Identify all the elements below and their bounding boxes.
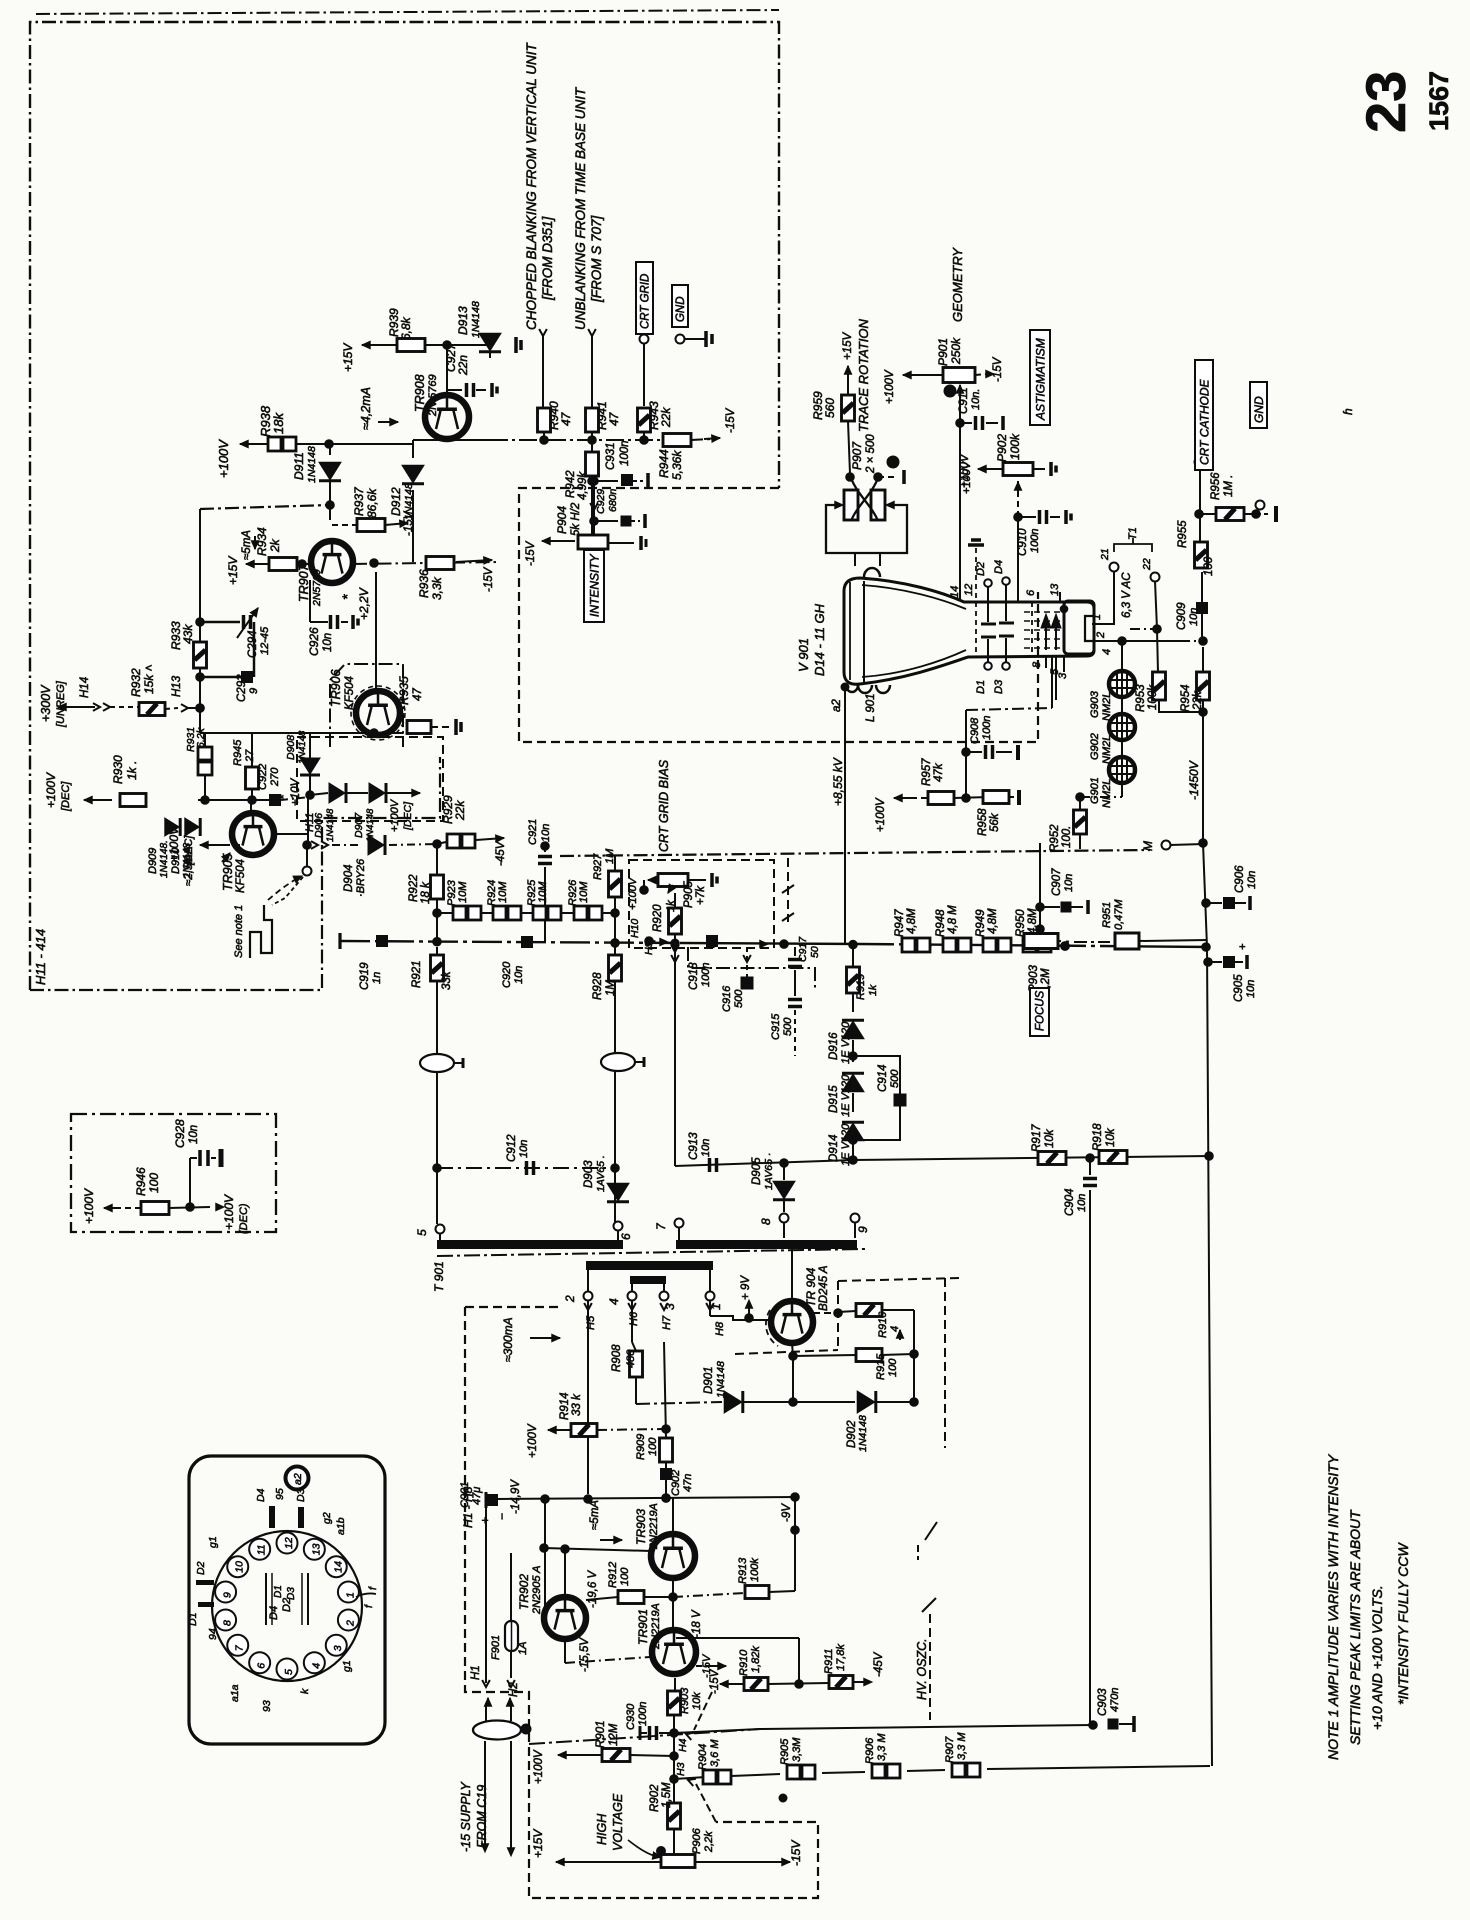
svg-text:R956: R956 [1210,472,1222,500]
svg-text:a2: a2 [831,699,843,712]
svg-text:M: M [1141,841,1155,851]
svg-text:TR903: TR903 [634,1509,648,1545]
svg-text:1k: 1k [867,984,879,996]
svg-text:R944: R944 [657,449,671,478]
svg-text:H5: H5 [585,1315,597,1330]
svg-text:R905: R905 [779,1738,791,1765]
svg-text:R922: R922 [408,874,420,902]
svg-text:-1450V: -1450V [1187,760,1201,800]
svg-text:[DEC]: [DEC] [60,781,72,812]
svg-text:1M .: 1M . [1223,475,1235,497]
svg-text:R927: R927 [592,853,604,880]
svg-text:13: 13 [310,1543,322,1555]
svg-text:10n: 10n [513,966,525,984]
svg-text:18 k: 18 k [420,881,432,904]
svg-text:4,8 M: 4,8 M [947,905,959,934]
svg-text:2N 5769: 2N 5769 [427,374,439,417]
svg-text:1,82k: 1,82k [750,1646,762,1673]
svg-text:VOLTAGE: VOLTAGE [611,1793,625,1851]
svg-text:+15V: +15V [341,343,355,372]
svg-text:22: 22 [1141,558,1153,571]
svg-text:R935: R935 [397,676,411,705]
svg-text:C918: C918 [688,962,700,990]
svg-text:R918: R918 [1092,1123,1104,1151]
svg-text:R921: R921 [411,961,423,989]
svg-text:2: 2 [563,1295,577,1303]
svg-text:H11 - 414: H11 - 414 [33,929,48,985]
svg-text:+100V: +100V [389,798,401,832]
svg-text:+100V: +100V [216,439,231,478]
svg-text:D2: D2 [195,1561,207,1575]
svg-text:G902: G902 [1089,733,1101,760]
svg-text:R949: R949 [975,909,987,937]
svg-text:500: 500 [889,1069,901,1088]
svg-text:12: 12 [963,584,975,596]
svg-text:D908: D908 [285,735,297,760]
svg-text:86,6k: 86,6k [365,488,379,518]
svg-text:47μ: 47μ [471,1487,483,1505]
svg-text:P905: P905 [683,881,695,908]
svg-text:R904: R904 [697,1744,709,1770]
svg-text:5: 5 [283,1669,295,1675]
svg-text:C901: C901 [459,1482,471,1508]
svg-text:93: 93 [261,1700,273,1712]
svg-text:H10: H10 [629,919,641,938]
svg-text:C917: C917 [797,936,809,962]
svg-text:+100V: +100V [884,369,896,404]
svg-text:680n: 680n [607,488,619,512]
svg-text:+7k: +7k [695,885,707,905]
svg-text:D915: D915 [828,1085,840,1113]
svg-text:CRT CATHODE: CRT CATHODE [1197,378,1211,465]
svg-text:+100V: +100V [222,1194,236,1230]
svg-text:R952: R952 [1049,824,1061,852]
svg-text:D909: D909 [147,848,159,874]
svg-text:≈300mA: ≈300mA [501,1317,515,1362]
svg-text:4: 4 [607,1298,621,1305]
svg-text:R958: R958 [977,808,989,836]
svg-text:3,6 M: 3,6 M [709,1739,721,1767]
svg-text:10n.: 10n. [970,389,982,410]
svg-text:1N4148: 1N4148 [297,730,308,764]
svg-text:R911: R911 [823,1649,835,1674]
svg-text:10n: 10n [700,1139,712,1157]
svg-text:1k .: 1k . [125,761,139,780]
svg-text:10n: 10n [1076,1194,1088,1212]
svg-text:56k: 56k [989,812,1001,832]
svg-text:-18 V: -18 V [691,1609,703,1638]
svg-text:100n: 100n [981,716,993,740]
svg-text:100k: 100k [1147,684,1159,710]
svg-text:P906: P906 [691,1827,703,1854]
svg-text:47k: 47k [933,762,945,782]
svg-text:-15,5V: -15,5V [579,1637,591,1672]
svg-text:TRACE ROTATION: TRACE ROTATION [856,318,871,432]
svg-text:6: 6 [256,1663,268,1669]
svg-text:R903: R903 [679,1687,691,1714]
svg-text:4: 4 [310,1663,322,1669]
svg-text:-14,9V: -14,9V [510,1479,522,1514]
svg-text:R913: R913 [737,1557,749,1584]
svg-text:D907: D907 [353,812,365,838]
svg-text:4,8M: 4,8M [906,908,918,934]
svg-text:-45V: -45V [495,840,507,866]
svg-text:2N2219A: 2N2219A [648,1503,660,1550]
svg-text:-15V: -15V [725,407,737,433]
svg-text:NM2L: NM2L [1101,779,1113,808]
svg-text:TR908: TR908 [413,374,427,412]
svg-text:-15V: -15V [525,540,537,566]
svg-text:C919: C919 [359,962,371,990]
svg-text:47: 47 [412,688,424,701]
svg-text:8: 8 [1031,661,1043,668]
svg-text:1N4148: 1N4148 [182,843,193,878]
svg-text:47: 47 [607,411,621,426]
svg-text:270: 270 [269,767,281,787]
svg-text:C914: C914 [877,1065,889,1093]
svg-text:P902: P902 [995,434,1009,462]
svg-text:R942: R942 [565,470,577,498]
svg-text:D4: D4 [993,560,1005,574]
svg-text:10n: 10n [188,1125,200,1144]
svg-text:+100V: +100V [875,797,887,832]
svg-text:+100V: +100V [527,1423,539,1458]
svg-text:+: + [1237,943,1249,950]
svg-text:250k: 250k [949,337,963,365]
svg-text:2N2905 A: 2N2905 A [531,1565,543,1615]
svg-text:TR902: TR902 [517,1574,531,1610]
svg-text:+15V: +15V [226,556,240,585]
svg-text:21: 21 [1099,548,1111,561]
svg-text:18k: 18k [271,412,286,434]
svg-text:10n: 10n [540,824,552,842]
svg-text:3,3M: 3,3M [791,1737,803,1762]
svg-text:8: 8 [222,1620,234,1626]
svg-text:8: 8 [759,1218,773,1225]
svg-text:480: 480 [625,1349,637,1368]
svg-text:3,3k: 3,3k [430,576,444,600]
svg-text:10M: 10M [457,881,469,903]
svg-text:C920: C920 [501,961,513,988]
svg-text:100k: 100k [749,1558,761,1582]
svg-text:D905: D905 [751,1157,763,1185]
svg-text:R953: R953 [1135,684,1147,712]
svg-text:10n: 10n [1063,874,1075,892]
svg-text:D911: D911 [292,452,306,480]
svg-text:43k: 43k [181,624,195,644]
svg-text:R932: R932 [129,668,143,697]
svg-text:2: 2 [1095,632,1107,639]
svg-text:1N4148: 1N4148 [857,1415,869,1452]
svg-text:4,8M: 4,8M [987,908,999,934]
svg-text:+100V: +100V [961,460,973,494]
svg-text:D2: D2 [975,562,987,576]
svg-text:H11: H11 [304,813,316,832]
svg-text:12-45: 12-45 [259,626,271,655]
svg-text:k: k [299,1688,311,1694]
svg-text:-15V: -15V [483,566,495,592]
svg-text:HV. OSZC.: HV. OSZC. [915,1638,929,1700]
svg-text:5,36k: 5,36k [670,450,684,480]
svg-text:C294: C294 [247,631,259,659]
svg-text:R908: R908 [611,1344,623,1372]
svg-text:R937: R937 [352,486,366,516]
svg-text:500: 500 [782,1017,794,1036]
svg-text:10M: 10M [497,881,509,903]
svg-text:D3: D3 [993,679,1005,694]
svg-text:22k: 22k [453,800,467,821]
svg-text:D910: D910 [170,847,182,874]
svg-text:22k: 22k [659,407,673,428]
svg-text:95: 95 [274,1488,286,1500]
svg-text:3: 3 [1057,672,1069,679]
svg-text:1N4148: 1N4148 [403,483,415,520]
svg-text:D916: D916 [828,1032,840,1060]
svg-text:C909: C909 [1176,602,1188,630]
svg-text:C908: C908 [969,717,981,744]
svg-text:1N4148: 1N4148 [325,808,336,842]
svg-text:a1b: a1b [335,1517,347,1535]
svg-text:TR906: TR906 [329,669,343,707]
svg-text:≈5mA: ≈5mA [241,530,253,560]
svg-text:0,47M: 0,47M [1113,899,1125,930]
svg-text:D14 - 11 GH: D14 - 11 GH [812,603,827,676]
svg-text:500: 500 [733,989,745,1008]
svg-text:[DEC]: [DEC] [402,801,414,831]
svg-text:C916: C916 [721,985,733,1012]
svg-text:T 901: T 901 [432,1261,446,1292]
svg-text:P901: P901 [936,338,950,366]
svg-text:+ 9V: + 9V [740,1275,752,1300]
svg-text:D901: D901 [703,1367,715,1395]
svg-text:D1: D1 [187,1613,199,1626]
svg-text:17,8k: 17,8k [835,1644,847,1671]
svg-text:R916: R916 [877,1311,889,1338]
svg-text:*INTENSITY FULLY CCW: *INTENSITY FULLY CCW [1395,1542,1411,1705]
svg-text:P904: P904 [555,506,569,534]
svg-text:C906: C906 [1234,865,1246,893]
svg-text:560: 560 [823,398,837,418]
svg-text:G903: G903 [1089,690,1101,718]
svg-text:GND: GND [1252,396,1266,423]
svg-text:C912: C912 [506,1134,518,1162]
svg-text:ɦ: ɦ [1341,408,1355,415]
svg-text:+100V: +100V [82,1188,96,1224]
svg-text:L 901: L 901 [865,693,877,722]
svg-text:+10 AND +100 VOLTS.: +10 AND +100 VOLTS. [1369,1585,1385,1730]
svg-text:R936: R936 [417,569,431,598]
svg-text:-15V: -15V [992,356,1004,382]
svg-text:2N2219A: 2N2219A [650,1603,662,1650]
svg-text:R914: R914 [559,1393,571,1421]
svg-text:94: 94 [207,1628,219,1640]
svg-text:C902: C902 [670,1470,682,1496]
svg-text:12: 12 [283,1537,295,1549]
svg-text:15k ˄: 15k ˄ [142,664,156,694]
svg-text:100n: 100n [619,440,631,466]
svg-text:R901: R901 [595,1721,607,1749]
svg-text:H1: H1 [470,1665,482,1680]
svg-text:D4: D4 [255,1488,267,1502]
svg-text:+15V: +15V [531,1829,545,1858]
svg-text:CRT GRID: CRT GRID [640,274,652,329]
svg-text:V 901: V 901 [796,638,811,672]
svg-text:10n: 10n [1188,608,1200,626]
svg-text:FOCUS: FOCUS [1035,990,1047,1031]
svg-text:FROM C19: FROM C19 [475,1785,489,1848]
svg-text:C931: C931 [605,443,617,471]
svg-text:1567: 1567 [1424,71,1454,131]
svg-text:1,5M: 1,5M [661,1782,673,1808]
svg-text:KF504: KF504 [344,676,356,710]
svg-text:50: 50 [809,946,821,958]
svg-text:*: * [339,594,355,600]
svg-text:G901: G901 [1089,777,1101,804]
svg-text:9: 9 [856,1226,870,1233]
svg-text:D912: D912 [389,487,403,516]
svg-text:1: 1 [1091,614,1103,620]
svg-text:GEOMETRY: GEOMETRY [950,247,965,322]
svg-text:C928: C928 [173,1119,187,1148]
svg-text:470n: 470n [1109,1688,1121,1712]
svg-text:g1: g1 [207,1536,219,1548]
svg-text:CHOPPED BLANKING FROM VERTICAL: CHOPPED BLANKING FROM VERTICAL UNIT [524,41,539,330]
svg-text:C907: C907 [1051,868,1063,896]
svg-text:[FROM S 707]: [FROM S 707] [589,214,604,303]
svg-text:R910: R910 [738,1649,750,1676]
svg-text:100: 100 [1203,556,1215,576]
svg-text:R912: R912 [607,1562,619,1588]
svg-text:4: 4 [1101,649,1113,655]
svg-text:100: 100 [647,1437,659,1456]
svg-text:C930: C930 [625,1703,637,1730]
svg-text:C911: C911 [958,387,970,414]
svg-text:1A: 1A [517,1642,529,1655]
svg-text:R930: R930 [111,755,125,784]
svg-text:-9V: -9V [781,1503,793,1522]
svg-text:10n: 10n [1246,871,1258,889]
svg-text:100: 100 [619,1567,631,1586]
svg-text:+8,55 kV: +8,55 kV [831,757,845,806]
svg-text:33k: 33k [441,970,453,990]
svg-text:4,99k: 4,99k [577,471,589,500]
svg-text:22n: 22n [456,355,470,376]
svg-text:BD245 A: BD245 A [818,1265,830,1311]
svg-text:C903: C903 [1097,1688,1109,1716]
svg-text:GND: GND [675,296,687,322]
svg-text:D3: D3 [286,1587,297,1600]
svg-text:C926: C926 [307,627,321,656]
svg-text:H3: H3 [675,1762,687,1776]
svg-text:10: 10 [234,1561,246,1573]
svg-text:6,8k: 6,8k [399,316,413,340]
svg-text:(DEC): (DEC) [238,1203,250,1234]
svg-text:H7: H7 [661,1315,673,1330]
svg-text:HIGH: HIGH [595,1813,609,1845]
svg-text:1AV65 .: 1AV65 . [595,1155,607,1192]
svg-text:D1: D1 [975,680,987,694]
svg-text:10k: 10k [1044,1128,1056,1148]
svg-text:KF504: KF504 [235,859,247,893]
svg-text:-15V: -15V [789,1840,803,1866]
svg-text:1n: 1n [371,972,383,984]
svg-text:47: 47 [559,411,573,426]
svg-text:+100V: +100V [44,772,58,808]
svg-text:D1: D1 [273,1585,284,1598]
svg-text:ASTIGMATISM: ASTIGMATISM [1033,338,1047,421]
svg-text:−: − [495,1513,509,1520]
svg-text:10M: 10M [578,881,590,903]
svg-text:1N4148: 1N4148 [715,1361,727,1398]
svg-text:See note 1: See note 1 [233,905,245,958]
svg-text:TR 904: TR 904 [804,1267,818,1307]
svg-text:27: 27 [244,749,256,763]
svg-text:100n: 100n [700,963,712,987]
svg-text:100.: 100. [1061,826,1073,848]
svg-text:10n: 10n [322,633,334,652]
svg-text:g2: g2 [321,1512,333,1524]
svg-text:+15V: +15V [842,331,854,360]
svg-text:100: 100 [887,1358,899,1377]
svg-text:R951: R951 [1101,902,1113,928]
svg-text:+10V: +10V [290,777,302,806]
svg-text:10k: 10k [691,1692,703,1710]
svg-text:D3: D3 [295,1488,307,1502]
svg-text:C293: C293 [236,674,248,702]
svg-text:H8: H8 [714,1321,726,1336]
svg-text:12M: 12M [608,1723,620,1746]
svg-text:g1: g1 [341,1660,353,1672]
svg-text:NOTE 1 AMPLITUDE VARIES WIT: NOTE 1 AMPLITUDE VARIES WITH INTENSITY [1325,1453,1341,1760]
svg-text:47n: 47n [682,1474,694,1492]
svg-text:33 k: 33 k [571,1393,583,1416]
svg-text:-45V: -45V [873,1651,885,1677]
svg-text:H13: H13 [171,675,183,697]
svg-text:-19,6 V: -19,6 V [587,1570,599,1608]
svg-text:-15 SUPPLY: -15 SUPPLY [459,1781,473,1852]
svg-text:R907: R907 [944,1736,956,1763]
svg-text:R928: R928 [592,972,604,1000]
svg-text:23: 23 [1354,71,1417,133]
svg-text:a1a: a1a [229,1684,241,1702]
svg-text:100n: 100n [1029,529,1041,553]
svg-text:3,3 M: 3,3 M [956,1732,968,1760]
svg-text:R915: R915 [875,1353,887,1380]
svg-text:a2: a2 [292,1473,304,1485]
svg-text:R917: R917 [1031,1124,1043,1152]
svg-text:≈4,2mA: ≈4,2mA [359,387,373,430]
svg-text:·BRY26: ·BRY26 [355,858,367,897]
svg-text:R902: R902 [649,1784,661,1812]
svg-text:D913: D913 [456,306,470,335]
svg-text:1E V120: 1E V120 [840,1074,852,1117]
svg-text:+100V: +100V [627,876,639,910]
svg-text:2: 2 [344,1620,356,1627]
svg-text:C915: C915 [770,1013,782,1040]
svg-text:5: 5 [415,1229,429,1236]
svg-text:P907: P907 [850,441,864,470]
svg-text:UNBLANKING FROM TIME BASE UNIT: UNBLANKING FROM TIME BASE UNIT [573,86,588,330]
svg-text:R955: R955 [1177,520,1189,548]
svg-text:2 × 500: 2 × 500 [865,434,877,474]
svg-text:10n: 10n [1245,980,1257,998]
svg-text:R945: R945 [232,739,244,766]
svg-text:3: 3 [332,1645,344,1651]
svg-text:TR901: TR901 [636,1609,650,1645]
svg-text:C910: C910 [1017,528,1029,556]
svg-text:CRT GRID BIAS: CRT GRID BIAS [657,759,671,852]
svg-text:100: 100 [147,1173,161,1193]
